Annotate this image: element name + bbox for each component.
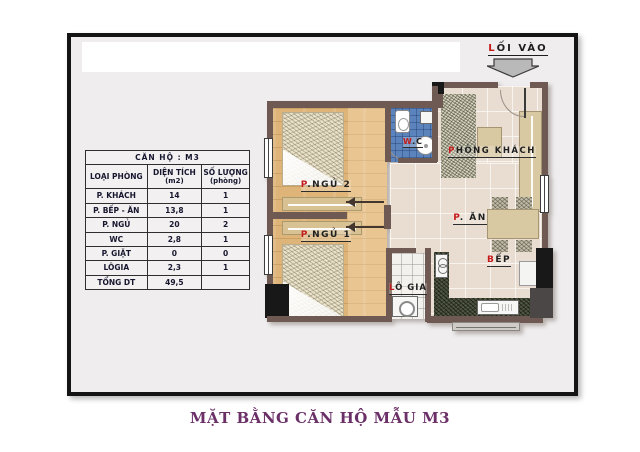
table-row: P. NGỦ202 bbox=[86, 218, 250, 232]
col-header-area: DIỆN TÍCH(m2) bbox=[147, 165, 202, 189]
page: LỐI VÀO bbox=[0, 0, 640, 452]
label-living: PHÒNG KHÁCH bbox=[441, 146, 543, 156]
label-loggia: LÔ GIA bbox=[385, 283, 431, 293]
col-header-count: SỐ LƯỢNG(phòng) bbox=[202, 165, 250, 189]
table-row: LÔGIA2,31 bbox=[86, 261, 250, 275]
table-row: TỔNG DT49,5 bbox=[86, 275, 250, 289]
label-bedroom2: P.NGỦ 2 bbox=[289, 180, 363, 190]
table-row: P. BẾP - ĂN13,81 bbox=[86, 203, 250, 217]
label-wc: W.C bbox=[397, 137, 429, 146]
table-row: P. KHÁCH141 bbox=[86, 189, 250, 203]
table-title: CĂN HỘ : M3 bbox=[86, 151, 250, 165]
label-bedroom1: P.NGỦ 1 bbox=[289, 230, 363, 240]
table-row: WC2,81 bbox=[86, 232, 250, 246]
page-title: MẶT BẰNG CĂN HỘ MẪU M3 bbox=[0, 409, 640, 427]
label-kitchen: BẾP bbox=[481, 255, 517, 265]
label-dining: P. ĂN bbox=[448, 213, 492, 223]
col-header-room: LOẠI PHÒNG bbox=[86, 165, 148, 189]
table-row: P. GIẶT00 bbox=[86, 246, 250, 260]
area-table: CĂN HỘ : M3 LOẠI PHÒNG DIỆN TÍCH(m2) SỐ … bbox=[85, 150, 250, 290]
